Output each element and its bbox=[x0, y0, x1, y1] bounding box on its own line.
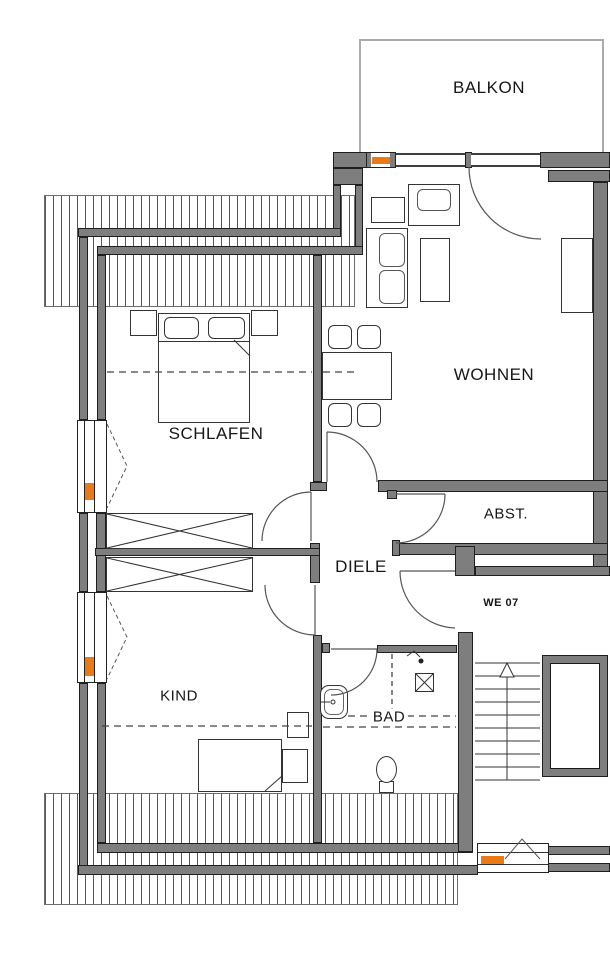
wall-segment bbox=[548, 170, 610, 182]
shower bbox=[415, 673, 434, 692]
pillow bbox=[164, 317, 199, 339]
nightstand bbox=[251, 310, 278, 336]
wardrobe bbox=[106, 513, 253, 549]
unit-label: WE 07 bbox=[483, 597, 519, 609]
sofa bbox=[366, 228, 408, 308]
window bbox=[77, 592, 107, 683]
wall-stairwell bbox=[458, 632, 473, 852]
room-label-kind: KIND bbox=[160, 688, 198, 705]
pillow bbox=[208, 317, 245, 339]
wall-left-outer bbox=[79, 237, 88, 420]
dining-chair bbox=[357, 325, 381, 349]
stairs-up-arrow bbox=[500, 663, 514, 677]
room-label-wohnen: WOHNEN bbox=[454, 365, 534, 385]
balcony-door-glazing bbox=[471, 153, 540, 167]
washbasin bbox=[320, 685, 348, 719]
nightstand bbox=[130, 310, 157, 336]
window-sill-marker bbox=[85, 483, 94, 500]
wall-segment bbox=[548, 846, 610, 855]
wall-segment bbox=[355, 185, 363, 247]
wall-segment bbox=[548, 863, 610, 872]
wall-left-outer bbox=[79, 683, 88, 875]
wall-bad-west bbox=[313, 635, 322, 843]
wardrobe bbox=[106, 557, 253, 592]
wall-left-outer bbox=[79, 513, 88, 592]
wall-bottom-outer bbox=[78, 865, 478, 875]
wall-segment bbox=[333, 168, 363, 185]
coffee-table bbox=[420, 238, 450, 302]
side-table bbox=[371, 197, 405, 223]
dining-chair bbox=[328, 403, 352, 427]
window-sill-marker bbox=[372, 157, 390, 164]
wall-step-block bbox=[455, 546, 475, 576]
room-label-bad: BAD bbox=[370, 709, 408, 726]
wall-eave-outer bbox=[78, 228, 341, 237]
child-desk bbox=[287, 712, 309, 738]
wall-schlafen-wohnen bbox=[313, 255, 322, 482]
wall-cap bbox=[322, 643, 330, 653]
floor-plan: BALKON WOHNEN SCHLAFEN ABST. DIELE KIND … bbox=[0, 0, 610, 960]
window-frame-cap bbox=[367, 153, 371, 167]
stairs bbox=[475, 663, 540, 780]
wall-cap bbox=[392, 540, 400, 556]
wall-bottom-inner bbox=[97, 843, 473, 853]
wall-right-exterior bbox=[593, 182, 608, 576]
dining-table bbox=[322, 352, 392, 400]
wall-abst-bottom bbox=[392, 543, 608, 555]
wall-cap bbox=[310, 482, 327, 491]
wall-schlafen-kind bbox=[95, 548, 320, 556]
single-bed bbox=[198, 739, 282, 792]
wall-cap bbox=[387, 490, 397, 499]
wall-landing bbox=[475, 566, 610, 576]
room-label-abst: ABST. bbox=[484, 506, 528, 523]
wall-bad-top bbox=[377, 645, 457, 653]
wall-wohnen-diele bbox=[378, 480, 608, 492]
window-sill-marker bbox=[85, 657, 94, 676]
balcony-glazing bbox=[396, 153, 470, 167]
room-label-schlafen: SCHLAFEN bbox=[169, 424, 264, 444]
wall-eave-inner bbox=[97, 246, 363, 255]
room-label-diele: DIELE bbox=[335, 557, 387, 577]
wall-segment bbox=[333, 152, 368, 168]
window bbox=[366, 152, 396, 168]
room-label-balkon: BALKON bbox=[453, 78, 525, 98]
single-bed-headboard bbox=[282, 749, 308, 783]
window-sill-marker bbox=[481, 856, 504, 864]
window bbox=[77, 420, 107, 513]
wall-left-inner bbox=[97, 683, 106, 843]
double-bed bbox=[158, 313, 250, 423]
sideboard bbox=[561, 238, 593, 313]
dining-chair bbox=[357, 403, 381, 427]
toilet bbox=[376, 756, 397, 783]
wall-segment bbox=[540, 152, 610, 168]
shaft-interior bbox=[550, 663, 600, 769]
wall-left-inner bbox=[97, 255, 106, 420]
dining-chair bbox=[328, 325, 352, 349]
window bbox=[477, 843, 549, 873]
armchair bbox=[408, 184, 460, 226]
window-frame-cap bbox=[390, 153, 395, 167]
